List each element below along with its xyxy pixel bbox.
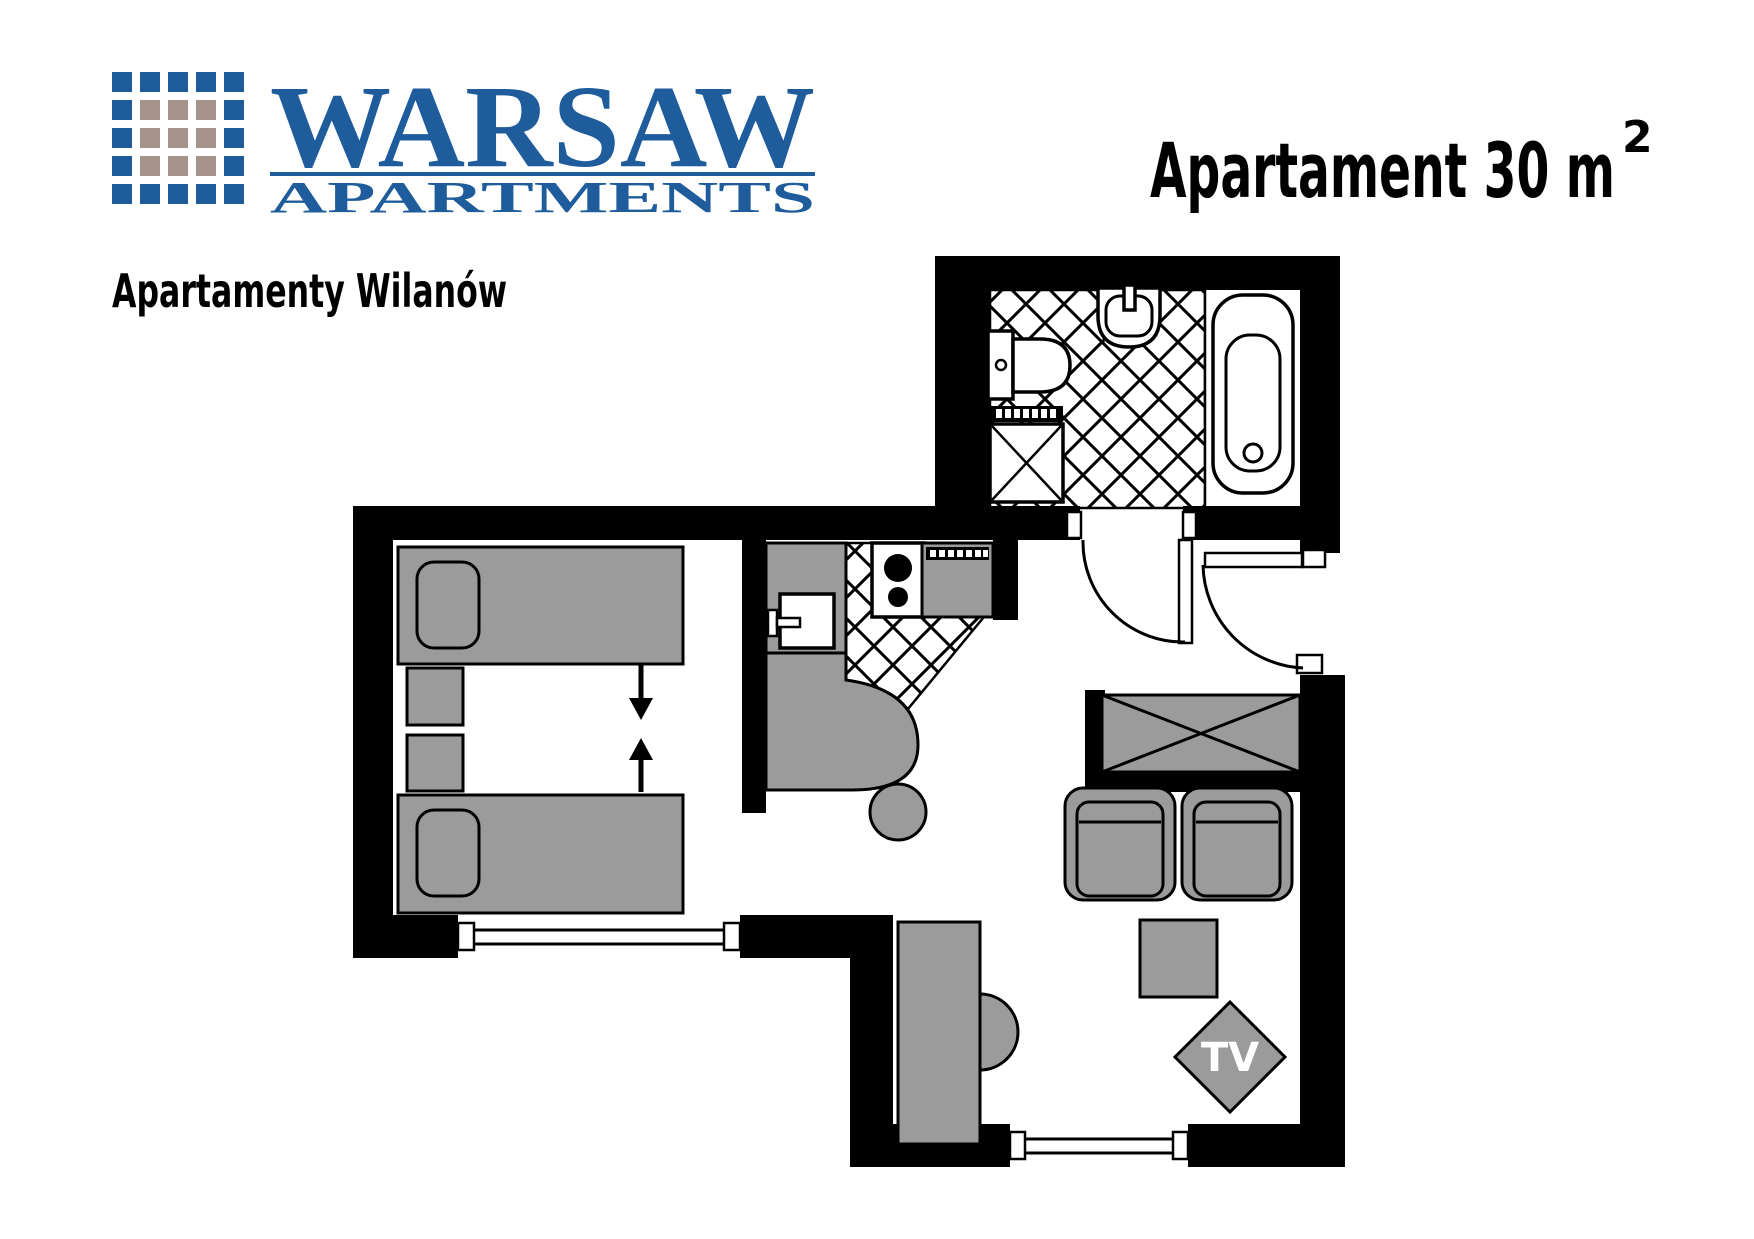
bed-1 [398,547,683,664]
brand-wordmark-sub: APARTMENTS [270,173,815,222]
door-jamb-right [1183,512,1196,538]
desk [898,922,980,1144]
washbasin-icon [1098,285,1160,347]
pillow-icon [417,810,479,896]
tv-label: TV [1201,1035,1259,1081]
floor-plan-page: WARSAW APARTMENTS Apartamenty Wilanów Ap… [0,0,1754,1239]
wall-bedroom-left [353,506,393,958]
wall-bedroom-bottom-left [353,915,458,958]
washing-machine-icon [990,424,1063,502]
wardrobe-icon [1102,695,1300,772]
page-title-superscript: 2 [1622,112,1653,163]
bar-stool-icon [870,784,926,840]
page-title: Apartament 30 m 2 [1150,112,1653,215]
wall-bedroom-bottom-right [740,915,893,958]
logo-grid-icon [112,72,244,204]
entrance-door-leaf [1205,553,1302,567]
entrance-door-jamb-top [1303,550,1325,567]
wall-bedroom-kitchen-divider [742,540,766,813]
entrance-door-jamb-bottom [1297,655,1322,673]
kitchen-appliance-icon [922,543,993,617]
door-jamb-left [1067,512,1081,538]
wall-right-lower [1300,675,1345,1167]
bathroom-door-leaf [1179,540,1192,643]
floor-plan-canvas: WARSAW APARTMENTS Apartamenty Wilanów Ap… [0,0,1754,1239]
living-room-window [1010,1124,1188,1167]
armchair-2 [1182,788,1292,900]
coffee-table [1140,920,1217,997]
bedroom-window [458,915,740,958]
wall-main-horizontal [353,506,1080,540]
nightstand-2 [407,735,463,791]
bathtub-icon [1213,295,1293,493]
wall-main-horizontal-right [1183,506,1340,540]
toilet-icon [988,331,1070,399]
radiator-strip-icon [990,406,1063,422]
armchair-1 [1065,788,1175,900]
nightstand-1 [407,668,463,725]
bed-2 [398,795,683,913]
pillow-icon [417,562,479,648]
wall-bathroom-left [935,256,990,540]
stove-icon [872,543,924,617]
brand-tagline: Apartamenty Wilanów [112,264,507,318]
page-title-text: Apartament 30 m [1150,126,1615,215]
wall-kitchen-stub [993,540,1018,620]
